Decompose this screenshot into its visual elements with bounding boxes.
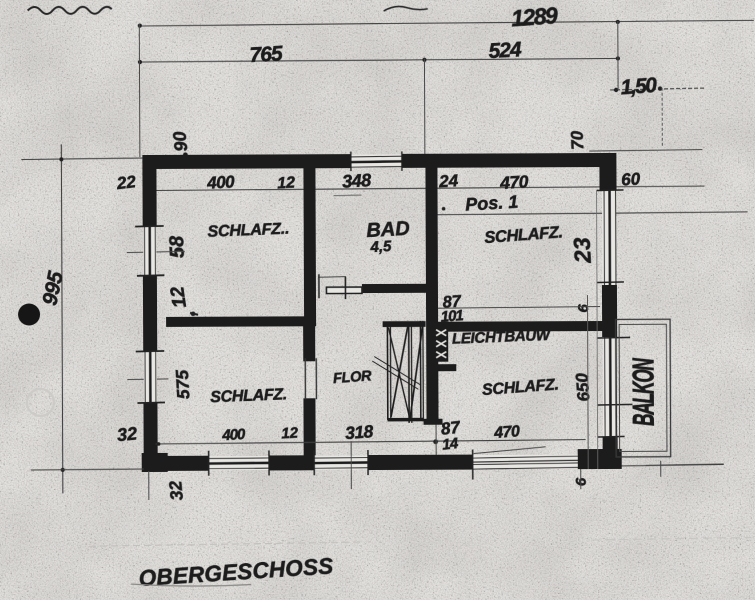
svg-text:23: 23 <box>568 237 595 265</box>
svg-text:60: 60 <box>621 169 642 189</box>
svg-text:318: 318 <box>344 421 374 443</box>
svg-text:70: 70 <box>568 130 588 150</box>
svg-text:400: 400 <box>206 172 236 193</box>
svg-text:BALKON: BALKON <box>627 358 660 426</box>
svg-text:12: 12 <box>167 285 191 309</box>
svg-text:14: 14 <box>441 435 460 454</box>
svg-text:6: 6 <box>575 304 592 313</box>
svg-text:348: 348 <box>342 170 372 192</box>
svg-text:90: 90 <box>169 130 191 152</box>
svg-text:32: 32 <box>116 423 138 445</box>
svg-text:400: 400 <box>221 426 247 444</box>
svg-text:470: 470 <box>493 423 521 442</box>
svg-text:FLOR: FLOR <box>332 368 372 387</box>
svg-text:SCHLAFZ.: SCHLAFZ. <box>210 386 287 406</box>
svg-text:575: 575 <box>172 369 194 400</box>
svg-text:470: 470 <box>499 171 530 193</box>
svg-text:765: 765 <box>249 42 284 67</box>
svg-text:12: 12 <box>281 424 299 442</box>
svg-text:32: 32 <box>165 480 187 501</box>
svg-text:1,50: 1,50 <box>620 74 658 100</box>
svg-text:58: 58 <box>166 235 189 259</box>
svg-text:650: 650 <box>572 372 593 402</box>
svg-text:SCHLAFZ..: SCHLAFZ.. <box>207 221 289 241</box>
svg-text:22: 22 <box>115 172 137 193</box>
svg-text:4,5: 4,5 <box>369 238 392 256</box>
svg-text:Pos. 1: Pos. 1 <box>465 192 519 215</box>
svg-text:12: 12 <box>277 174 296 192</box>
svg-text:1289: 1289 <box>510 2 559 31</box>
svg-text:524: 524 <box>488 38 523 63</box>
svg-text:24: 24 <box>438 171 459 191</box>
